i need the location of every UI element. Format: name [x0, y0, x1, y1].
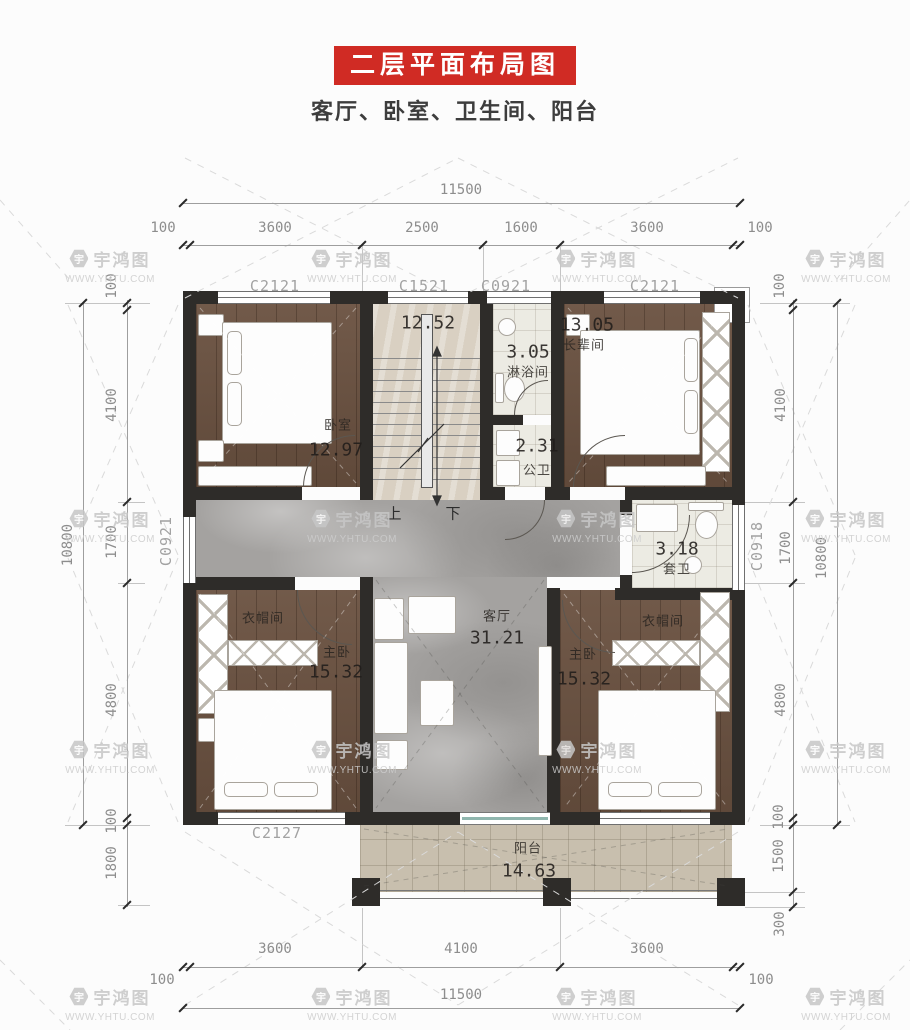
balcony-column [717, 878, 745, 906]
wall [345, 812, 460, 825]
wall [551, 291, 604, 304]
window-code: C2121 [250, 277, 300, 295]
room-name: 衣帽间 [642, 611, 684, 630]
room-area: 3.05 [506, 342, 549, 363]
dim-right-overall: 10800 [814, 537, 830, 579]
decor [748, 558, 855, 822]
decor [68, 558, 178, 822]
watermark-brand: 宇鸿图 [830, 246, 887, 271]
floor-plan-page: 二层平面布局图 客厅、卧室、卫生间、阳台 [0, 0, 910, 1030]
dimension-line [183, 1008, 740, 1009]
watermark-row: 宇宇鸿图 [806, 984, 887, 1009]
watermark-brand: 宇鸿图 [830, 737, 887, 762]
wall [196, 577, 295, 590]
dim-bottom-seg: 3600 [258, 941, 292, 957]
room-area: 15.32 [309, 662, 363, 683]
window-code: C2121 [630, 277, 680, 295]
vanity-cabinet [496, 460, 520, 486]
armchair [374, 598, 404, 640]
extension-line [65, 303, 150, 304]
dim-right-seg: 4100 [773, 388, 789, 422]
room-area: 31.21 [470, 628, 524, 649]
decor [0, 960, 70, 1030]
pillow [684, 338, 698, 382]
page-subtitle: 客厅、卧室、卫生间、阳台 [311, 94, 599, 126]
stair-up-label: 上 [386, 503, 401, 524]
watermark-url: WWW.YHTU.COM [801, 274, 891, 285]
window-c0921-west [183, 517, 196, 583]
wall [615, 588, 620, 600]
window-code: C2127 [252, 824, 302, 842]
watermark-row: 宇宇鸿图 [312, 246, 393, 271]
dim-left-overall: 10800 [60, 524, 76, 566]
dim-top-seg: 2500 [405, 220, 439, 236]
dim-bottom-seg: 100 [149, 972, 174, 988]
wall [183, 583, 196, 825]
watermark: 宇宇鸿图WWW.YHTU.COM [307, 984, 397, 1023]
dim-top-seg: 100 [150, 220, 175, 236]
sofa [408, 596, 456, 634]
dim-right-seg: 4800 [773, 683, 789, 717]
decor [840, 960, 910, 1030]
room-name: 主卧 [323, 642, 351, 661]
wall [330, 291, 388, 304]
dim-top-seg: 1600 [504, 220, 538, 236]
wall [620, 500, 632, 515]
watermark-logo-icon: 宇 [312, 987, 331, 1006]
extension-line [118, 583, 145, 584]
watermark-row: 宇宇鸿图 [70, 737, 151, 762]
extension-line [560, 245, 561, 291]
dimension-line [183, 967, 740, 968]
dimension-tick [735, 1003, 744, 1012]
dimension-line [183, 245, 740, 246]
balcony-column [543, 878, 571, 906]
room-name: 主卧 [569, 644, 597, 663]
watermark-url: WWW.YHTU.COM [552, 1012, 642, 1023]
extension-line [362, 908, 363, 967]
watermark-logo-icon: 宇 [70, 987, 89, 1006]
watermark-brand: 宇鸿图 [830, 506, 887, 531]
dim-right-seg: 300 [772, 911, 788, 936]
watermark-brand: 宇鸿图 [336, 984, 393, 1009]
wall [545, 487, 564, 500]
decor [748, 558, 855, 822]
window-code: C1521 [399, 277, 449, 295]
extension-line [362, 245, 363, 291]
sliding-door-glass [462, 817, 548, 820]
room-area: 3.18 [655, 539, 698, 560]
watermark-brand: 宇鸿图 [94, 246, 151, 271]
wall [493, 415, 523, 425]
wall [360, 577, 373, 812]
dimension-line [183, 203, 740, 204]
watermark-row: 宇宇鸿图 [557, 246, 638, 271]
room-area: 13.05 [560, 315, 614, 336]
extension-line [118, 502, 145, 503]
extension-line [745, 583, 805, 584]
wall [732, 291, 745, 505]
page-title-banner: 二层平面布局图 [334, 46, 576, 85]
dim-bottom-overall: 11500 [440, 987, 482, 1003]
dim-top-seg: 100 [747, 220, 772, 236]
decor [68, 558, 178, 822]
room-name: 套卫 [663, 559, 691, 578]
watermark-brand: 宇鸿图 [94, 984, 151, 1009]
watermark-brand: 宇鸿图 [336, 246, 393, 271]
room-name: 公卫 [523, 460, 551, 479]
window-code: C0921 [157, 516, 175, 566]
room-name: 阳台 [514, 838, 542, 857]
pillow [684, 390, 698, 434]
watermark-url: WWW.YHTU.COM [307, 1012, 397, 1023]
tv-cabinet [538, 646, 552, 756]
watermark-logo-icon: 宇 [312, 249, 331, 268]
wardrobe [702, 312, 730, 472]
room-area: 2.31 [515, 436, 558, 457]
pillow [227, 331, 242, 375]
dim-left-seg: 100 [104, 808, 120, 833]
toilet-tank [495, 373, 504, 403]
stair-down-label: 下 [445, 503, 460, 524]
watermark: 宇宇鸿图WWW.YHTU.COM [801, 737, 891, 776]
watermark: 宇宇鸿图WWW.YHTU.COM [65, 984, 155, 1023]
dim-right-seg: 100 [771, 804, 787, 829]
nightstand [198, 440, 224, 462]
dim-bottom-seg: 100 [748, 972, 773, 988]
dim-right-seg: 1500 [771, 839, 787, 873]
toilet-bowl [695, 511, 718, 539]
watermark-row: 宇宇鸿图 [312, 984, 393, 1009]
window-code: C0918 [748, 521, 766, 571]
room-area: 14.63 [502, 861, 556, 882]
dim-bottom-seg: 4100 [444, 941, 478, 957]
washbasin [498, 318, 516, 336]
wall [732, 590, 745, 825]
watermark-row: 宇宇鸿图 [557, 984, 638, 1009]
watermark-brand: 宇鸿图 [94, 737, 151, 762]
wall [480, 304, 493, 500]
watermark-row: 宇宇鸿图 [70, 984, 151, 1009]
watermark-brand: 宇鸿图 [581, 246, 638, 271]
watermark-url: WWW.YHTU.COM [801, 765, 891, 776]
dim-left-seg: 4800 [104, 683, 120, 717]
floor-corridor [196, 500, 620, 577]
wall [183, 291, 196, 517]
wardrobe [612, 640, 700, 666]
window-c0918-east [732, 505, 745, 590]
dresser [198, 466, 312, 486]
dim-left-seg: 100 [104, 273, 120, 298]
watermark-brand: 宇鸿图 [830, 984, 887, 1009]
window-master-east-bottom [600, 812, 710, 825]
decor [748, 305, 855, 555]
watermark-url: WWW.YHTU.COM [65, 765, 155, 776]
dim-bottom-seg: 3600 [630, 941, 664, 957]
room-name: 客厅 [483, 606, 511, 625]
dimension-line [837, 303, 838, 825]
dim-left-seg: 4100 [104, 388, 120, 422]
room-name: 长辈间 [563, 335, 605, 354]
watermark-logo-icon: 宇 [806, 740, 825, 759]
dimension-tick [735, 198, 744, 207]
pillow [227, 382, 242, 426]
watermark: 宇宇鸿图WWW.YHTU.COM [307, 246, 397, 285]
room-name: 淋浴间 [507, 362, 549, 381]
wall [196, 487, 302, 500]
room-area: 12.97 [309, 440, 363, 461]
pillow [608, 782, 652, 797]
balcony-column [352, 878, 380, 906]
toilet-tank [688, 502, 724, 511]
dim-top-seg: 3600 [630, 220, 664, 236]
dim-left-seg: 1700 [104, 525, 120, 559]
dim-left-seg: 1800 [104, 846, 120, 880]
extension-line [560, 908, 561, 967]
watermark-url: WWW.YHTU.COM [65, 1012, 155, 1023]
window-code: C0921 [481, 277, 531, 295]
watermark-logo-icon: 宇 [70, 740, 89, 759]
watermark: 宇宇鸿图WWW.YHTU.COM [801, 984, 891, 1023]
watermark-row: 宇宇鸿图 [806, 246, 887, 271]
decor [0, 200, 70, 280]
wall [183, 812, 218, 825]
wall [620, 575, 632, 588]
watermark-logo-icon: 宇 [557, 987, 576, 1006]
wall [550, 812, 600, 825]
dim-right-seg: 100 [772, 273, 788, 298]
wall [625, 487, 732, 500]
watermark-row: 宇宇鸿图 [806, 737, 887, 762]
watermark-logo-icon: 宇 [806, 987, 825, 1006]
watermark: 宇宇鸿图WWW.YHTU.COM [65, 737, 155, 776]
pillow [658, 782, 702, 797]
room-name: 衣帽间 [242, 608, 284, 627]
side-table [376, 740, 408, 770]
wall [360, 304, 373, 500]
pillow [274, 782, 318, 797]
extension-line [745, 892, 805, 893]
dim-top-seg: 3600 [258, 220, 292, 236]
pillow [224, 782, 268, 797]
room-name: 卧室 [324, 415, 352, 434]
watermark: 宇宇鸿图WWW.YHTU.COM [552, 246, 642, 285]
watermark-logo-icon: 宇 [806, 249, 825, 268]
stair-stringer [421, 314, 433, 488]
watermark-url: WWW.YHTU.COM [307, 274, 397, 285]
watermark: 宇宇鸿图WWW.YHTU.COM [801, 246, 891, 285]
room-area: 15.32 [557, 669, 611, 690]
decor [748, 305, 855, 555]
wall [710, 812, 745, 825]
sofa-long [374, 642, 408, 734]
watermark-row: 宇宇鸿图 [806, 506, 887, 531]
watermark-brand: 宇鸿图 [581, 984, 638, 1009]
watermark-row: 宇宇鸿图 [70, 246, 151, 271]
wardrobe [228, 640, 318, 666]
nightstand [198, 314, 224, 336]
dim-top-overall: 11500 [440, 182, 482, 198]
room-area: 12.52 [401, 313, 455, 334]
extension-line [745, 502, 805, 503]
extension-line [745, 907, 805, 908]
watermark-brand: 宇鸿图 [94, 506, 151, 531]
dimension-line [83, 303, 84, 825]
watermark-url: WWW.YHTU.COM [801, 1012, 891, 1023]
wall [564, 487, 570, 500]
watermark: 宇宇鸿图WWW.YHTU.COM [552, 984, 642, 1023]
wall [493, 487, 505, 500]
coffee-table [420, 680, 454, 726]
watermark-url: WWW.YHTU.COM [552, 274, 642, 285]
dim-right-seg: 1700 [778, 531, 794, 565]
watermark-logo-icon: 宇 [806, 509, 825, 528]
watermark-logo-icon: 宇 [70, 249, 89, 268]
decor [840, 200, 910, 280]
